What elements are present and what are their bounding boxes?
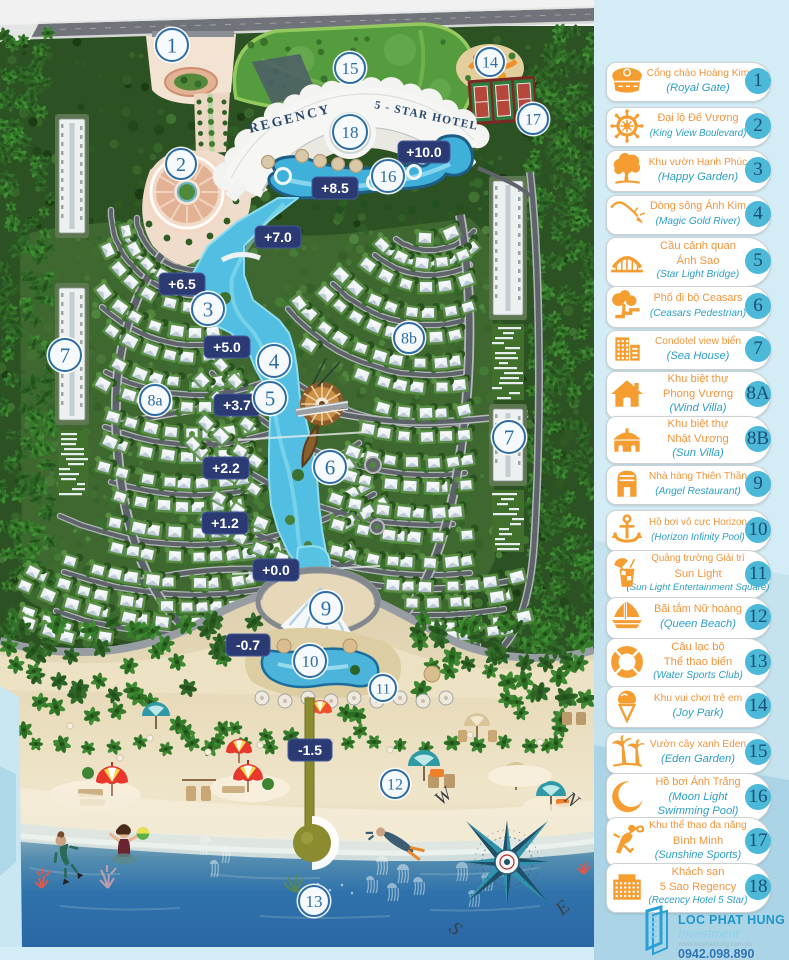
svg-text:3: 3 — [203, 297, 214, 321]
svg-text:7: 7 — [504, 425, 515, 449]
svg-text:18: 18 — [342, 123, 359, 142]
svg-text:1: 1 — [167, 33, 178, 57]
svg-text:+10.0: +10.0 — [406, 144, 442, 160]
svg-text:14: 14 — [482, 55, 498, 72]
svg-text:-1.5: -1.5 — [298, 742, 322, 758]
svg-text:6: 6 — [325, 455, 336, 479]
svg-text:8a: 8a — [147, 393, 162, 410]
svg-text:5: 5 — [265, 386, 276, 410]
svg-text:+5.0: +5.0 — [213, 339, 241, 355]
svg-text:-0.7: -0.7 — [236, 637, 260, 653]
svg-text:16: 16 — [380, 167, 397, 186]
svg-text:13: 13 — [306, 892, 323, 911]
svg-text:+0.0: +0.0 — [262, 562, 290, 578]
svg-text:15: 15 — [342, 59, 359, 78]
svg-text:12: 12 — [387, 777, 403, 794]
svg-text:+6.5: +6.5 — [168, 276, 196, 292]
svg-text:7: 7 — [60, 343, 71, 367]
svg-text:+1.2: +1.2 — [211, 515, 239, 531]
svg-text:11: 11 — [376, 681, 390, 697]
svg-text:8b: 8b — [401, 331, 417, 348]
svg-text:10: 10 — [302, 652, 319, 671]
svg-text:+8.5: +8.5 — [321, 180, 349, 196]
svg-text:+3.7: +3.7 — [223, 397, 251, 413]
svg-text:+7.0: +7.0 — [264, 229, 292, 245]
svg-text:2: 2 — [176, 154, 186, 176]
svg-text:4: 4 — [269, 349, 280, 373]
svg-text:17: 17 — [525, 112, 541, 129]
svg-text:9: 9 — [321, 596, 332, 620]
svg-text:+2.2: +2.2 — [212, 460, 240, 476]
